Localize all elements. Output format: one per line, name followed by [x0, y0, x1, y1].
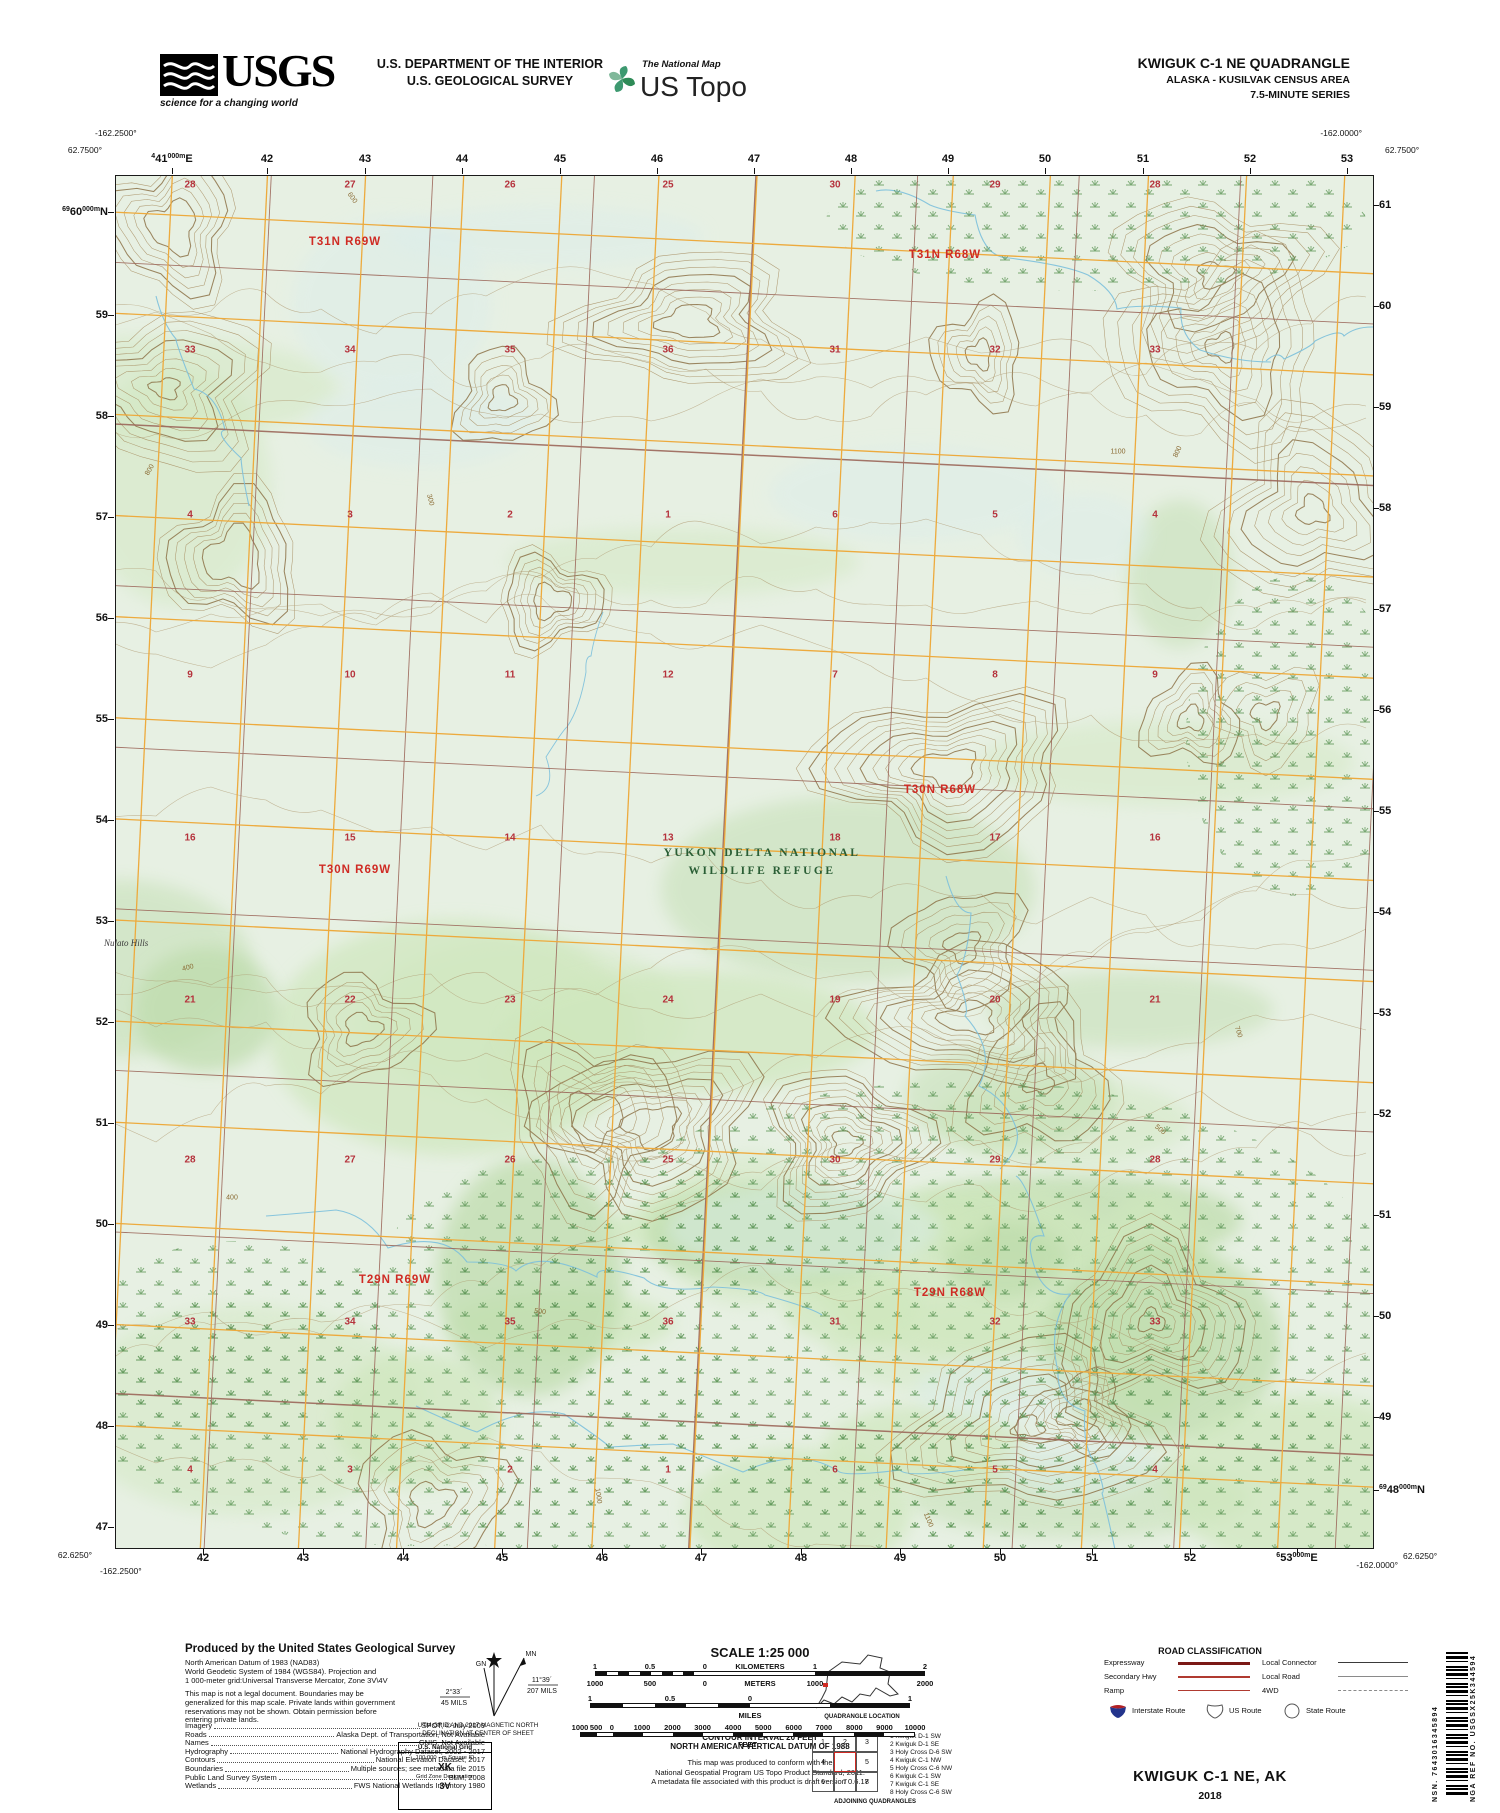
- adjoining-quad-cell: 6: [812, 1772, 834, 1792]
- road-class-label: Secondary Hwy: [1104, 1672, 1157, 1681]
- grid-tick: [108, 820, 114, 821]
- scale-bar-label: 500: [590, 1723, 603, 1732]
- grid-tick: [948, 168, 949, 174]
- grid-tick: [108, 1527, 114, 1528]
- corner-bl-lat: 62.6250°: [58, 1550, 92, 1560]
- grid-tick: [1373, 508, 1379, 509]
- scale-bar-cell: [613, 1733, 643, 1736]
- scale-bar-label: 1: [813, 1662, 817, 1671]
- corner-tr-lat: 62.7500°: [1385, 145, 1419, 155]
- usng-title: U.S. National Grid: [399, 1743, 491, 1753]
- grid-tick: [1347, 168, 1348, 174]
- svg-text:GN: GN: [476, 1661, 487, 1668]
- credit-leader: [217, 1756, 373, 1763]
- scale-bar-label: 2000: [664, 1723, 681, 1732]
- grid-easting-label: 51: [1137, 153, 1149, 165]
- svg-text:2°33´: 2°33´: [446, 1688, 463, 1696]
- grid-tick: [1297, 1549, 1298, 1555]
- grid-northing-label: 50: [1379, 1310, 1391, 1322]
- grid-tick: [365, 168, 366, 174]
- scale-bar-label: METERS: [744, 1679, 775, 1688]
- nga-ref: NGA REF NO. USGSX25K344594: [1470, 1652, 1477, 1802]
- grid-tick: [1000, 1549, 1001, 1555]
- grid-easting-label: 52: [1244, 153, 1256, 165]
- grid-tick: [900, 1549, 901, 1555]
- grid-tick: [1373, 912, 1379, 913]
- corner-tl-lon: -162.2500°: [95, 128, 137, 138]
- credit-label: Wetlands: [185, 1782, 216, 1791]
- grid-northing-label: 59: [1379, 401, 1391, 413]
- scale-bar-cell: [733, 1733, 763, 1736]
- grid-tick: [1373, 609, 1379, 610]
- road-class-line: [1178, 1662, 1250, 1665]
- scale-bar-label: 1000: [572, 1723, 589, 1732]
- grid-easting-label: 44: [456, 153, 468, 165]
- grid-tick: [754, 168, 755, 174]
- scale-bar-cell: [662, 1672, 673, 1675]
- scale-bar-unit: FEET: [738, 1740, 757, 1749]
- grid-northing-label: 51: [1379, 1209, 1391, 1221]
- grid-tick: [1373, 710, 1379, 711]
- grid-easting-label: 47: [748, 153, 760, 165]
- declination-diagram: GNMN2°33´45 MILS11°39´207 MILS: [432, 1642, 562, 1725]
- usng-square-id: XK: [399, 1761, 491, 1774]
- grid-northing-label: 50: [96, 1218, 108, 1230]
- grid-tick: [108, 517, 114, 518]
- grid-northing-label: 48: [96, 1420, 108, 1432]
- scale-bar-label: 0.5: [665, 1694, 675, 1703]
- road-class-label: Expressway: [1104, 1658, 1144, 1667]
- grid-northing-label: 57: [96, 511, 108, 523]
- adjoining-quad-cell: 4: [812, 1752, 834, 1772]
- interstate-shield-icon: [1108, 1702, 1128, 1724]
- scale-bar-label: 9000: [876, 1723, 893, 1732]
- scale-bar-label: 0: [703, 1679, 707, 1688]
- adjoining-quads-list: 1 Kwiguk D-1 SW2 Kwiguk D-1 SE3 Holy Cro…: [890, 1733, 952, 1797]
- grid-tick: [108, 1123, 114, 1124]
- grid-tick: [1373, 811, 1379, 812]
- road-shield-label: US Route: [1229, 1706, 1262, 1715]
- grid-northing-label: 55: [1379, 805, 1391, 817]
- grid-tick: [1045, 168, 1046, 174]
- barcode: [1446, 1652, 1468, 1797]
- grid-tick: [1092, 1549, 1093, 1555]
- grid-tick: [1143, 168, 1144, 174]
- topo-map: [115, 175, 1374, 1549]
- grid-tick: [1373, 205, 1379, 206]
- grid-easting-label: 46: [651, 153, 663, 165]
- tnm-label: The National Map: [642, 59, 721, 70]
- department-header: U.S. DEPARTMENT OF THE INTERIOR U.S. GEO…: [340, 56, 640, 90]
- scale-bar-cell: [793, 1733, 823, 1736]
- current-quad-cell: [834, 1752, 856, 1772]
- grid-tick: [108, 618, 114, 619]
- scale-bar-label: 2000: [917, 1679, 934, 1688]
- grid-northing-label: 6948000mN: [1379, 1484, 1425, 1496]
- scale-bar: [580, 1732, 915, 1737]
- grid-tick: [1373, 1013, 1379, 1014]
- road-class-line: [1338, 1662, 1408, 1663]
- scale-bar-label: 3000: [694, 1723, 711, 1732]
- grid-northing-label: 56: [96, 612, 108, 624]
- scale-bar-unit: MILES: [739, 1711, 762, 1720]
- us-topo-map-sheet: USGS science for a changing world U.S. D…: [0, 0, 1500, 1813]
- scale-bar-cell: [655, 1704, 687, 1707]
- grid-northing-label: 58: [96, 410, 108, 422]
- nsn-ref: NSN. 7643016345894: [1432, 1652, 1439, 1802]
- us-shield-icon: [1205, 1702, 1225, 1724]
- grid-northing-label: 49: [1379, 1411, 1391, 1423]
- grid-tick: [108, 315, 114, 316]
- sheet-title: KWIGUK C-1 NE, AK: [1080, 1768, 1340, 1785]
- grid-tick: [602, 1549, 603, 1555]
- scale-bar-label: 500: [644, 1679, 657, 1688]
- quad-location-marker: [823, 1683, 828, 1687]
- scale-bar-label: 1000: [587, 1679, 604, 1688]
- grid-tick: [801, 1549, 802, 1555]
- scale-bar-cell: [596, 1672, 607, 1675]
- scale-bar-label: 8000: [846, 1723, 863, 1732]
- grid-northing-label: 51: [96, 1117, 108, 1129]
- grid-tick: [1373, 1417, 1379, 1418]
- usgs-logo-icon: [160, 54, 218, 96]
- grid-tick: [108, 1022, 114, 1023]
- adjoining-quad-name: 3 Holy Cross D-6 SW: [890, 1749, 952, 1757]
- road-class-label: 4WD: [1262, 1686, 1279, 1695]
- grid-northing-label: 54: [1379, 906, 1391, 918]
- scale-bar-cell: [683, 1672, 694, 1675]
- grid-tick: [1373, 1114, 1379, 1115]
- datum-notes: North American Datum of 1983 (NAD83)Worl…: [185, 1659, 388, 1685]
- grid-tick: [657, 168, 658, 174]
- grid-tick: [108, 416, 114, 417]
- svg-text:11°39´: 11°39´: [532, 1676, 552, 1684]
- scale-bar-label: 6000: [785, 1723, 802, 1732]
- quadrangle-title-block: KWIGUK C-1 NE QUADRANGLE ALASKA - KUSILV…: [950, 55, 1350, 101]
- corner-tl-lat: 62.7500°: [68, 145, 102, 155]
- scale-bar-label: 0: [703, 1662, 707, 1671]
- corner-br-lon: -162.0000°: [1356, 1560, 1398, 1570]
- usgs-tagline: science for a changing world: [160, 98, 298, 109]
- adjoining-quad-name: 6 Kwiguk C-1 SW: [890, 1773, 952, 1781]
- road-class-line: [1338, 1690, 1408, 1691]
- grid-tick: [1373, 1316, 1379, 1317]
- scale-bar-label: 1: [588, 1694, 592, 1703]
- adjoining-quad-name: 8 Holy Cross C-6 SW: [890, 1789, 952, 1797]
- corner-tr-lon: -162.0000°: [1320, 128, 1362, 138]
- adjoining-quad-cell: 5: [856, 1752, 878, 1772]
- scale-bar-cell: [673, 1733, 703, 1736]
- scale-bar-label: 7000: [816, 1723, 833, 1732]
- road-class-label: Local Road: [1262, 1672, 1300, 1681]
- grid-northing-label: 52: [96, 1016, 108, 1028]
- scale-bar-cell: [640, 1672, 651, 1675]
- grid-easting-label: 53: [1341, 153, 1353, 165]
- scale-bar-label: 0: [610, 1723, 614, 1732]
- scale-bar-label: 0: [748, 1694, 752, 1703]
- grid-tick: [1373, 1215, 1379, 1216]
- credit-leader: [230, 1748, 338, 1755]
- usng-sub: 100,000 - m Square ID: [399, 1753, 491, 1761]
- grid-tick: [1190, 1549, 1191, 1555]
- sheet-year: 2018: [1080, 1790, 1340, 1802]
- grid-easting-label: 49: [942, 153, 954, 165]
- scale-bar-cell: [581, 1733, 597, 1736]
- grid-northing-label: 52: [1379, 1108, 1391, 1120]
- credit-leader: [209, 1731, 335, 1738]
- grid-northing-label: 61: [1379, 199, 1391, 211]
- grid-northing-label: 53: [96, 915, 108, 927]
- scale-bar-label: 10000: [905, 1723, 926, 1732]
- quadrangle-location-caption: QUADRANGLE LOCATION: [802, 1714, 922, 1720]
- grid-northing-label: 6960000mN: [62, 206, 108, 218]
- road-class-line: [1338, 1676, 1408, 1677]
- grid-tick: [108, 212, 114, 213]
- grid-northing-label: 49: [96, 1319, 108, 1331]
- grid-northing-label: 59: [96, 309, 108, 321]
- grid-northing-label: 55: [96, 713, 108, 725]
- grid-tick: [108, 1426, 114, 1427]
- grid-northing-label: 53: [1379, 1007, 1391, 1019]
- grid-northing-label: 58: [1379, 502, 1391, 514]
- scale-bar: [595, 1671, 925, 1676]
- grid-tick: [1373, 407, 1379, 408]
- grid-easting-label: 441000mE: [151, 153, 192, 165]
- usng-zone: 3V: [399, 1780, 491, 1792]
- scale-bar-cell: [618, 1672, 629, 1675]
- grid-northing-label: 60: [1379, 300, 1391, 312]
- adjoining-quads-grid: 12345678: [812, 1732, 878, 1792]
- scale-bar-label: 1000: [634, 1723, 651, 1732]
- grid-easting-label: 50: [1039, 153, 1051, 165]
- produced-by-title: Produced by the United States Geological…: [185, 1643, 455, 1655]
- state-shield-icon: [1282, 1702, 1302, 1724]
- svg-text:MN: MN: [526, 1651, 537, 1658]
- adjoining-quads-caption: ADJOINING QUADRANGLES: [800, 1799, 950, 1805]
- adjoining-quad-cell: 7: [834, 1772, 856, 1792]
- grid-easting-label: 45: [554, 153, 566, 165]
- ustopo-label: US Topo: [640, 71, 747, 103]
- road-class-line: [1178, 1676, 1250, 1678]
- scale-bar-label: 1000: [807, 1679, 824, 1688]
- grid-tick: [203, 1549, 204, 1555]
- road-classification-title: ROAD CLASSIFICATION: [1100, 1646, 1320, 1656]
- grid-easting-label: 43: [359, 153, 371, 165]
- grid-tick: [1373, 1490, 1379, 1491]
- adjoining-quad-cell: 8: [856, 1772, 878, 1792]
- credit-leader: [225, 1765, 349, 1772]
- scale-bar: [590, 1703, 910, 1708]
- us-national-grid-box: U.S. National Grid 100,000 - m Square ID…: [398, 1742, 492, 1810]
- svg-text:207 MILS: 207 MILS: [527, 1688, 557, 1695]
- grid-tick: [303, 1549, 304, 1555]
- grid-tick: [403, 1549, 404, 1555]
- svg-text:45 MILS: 45 MILS: [441, 1700, 467, 1707]
- scale-bar-cell: [815, 1672, 924, 1675]
- grid-tick: [560, 168, 561, 174]
- scale-bar-cell: [830, 1704, 910, 1707]
- quad-series: 7.5-MINUTE SERIES: [950, 89, 1350, 101]
- scale-bar-label: 4000: [725, 1723, 742, 1732]
- national-map-pinwheel-icon: [606, 63, 638, 95]
- quad-title: KWIGUK C-1 NE QUADRANGLE: [950, 55, 1350, 71]
- usgs-wordmark: USGS: [222, 44, 334, 97]
- adjoining-quad-name: 7 Kwiguk C-1 SE: [890, 1781, 952, 1789]
- grid-tick: [108, 921, 114, 922]
- corner-bl-lon: -162.2500°: [100, 1566, 142, 1576]
- grid-tick: [108, 1224, 114, 1225]
- dept-line1: U.S. DEPARTMENT OF THE INTERIOR: [340, 56, 640, 73]
- grid-tick: [462, 168, 463, 174]
- scale-bar-cell: [854, 1733, 884, 1736]
- grid-tick: [108, 1325, 114, 1326]
- legal-notes: This map is not a legal document. Bounda…: [185, 1690, 395, 1725]
- scale-bar-label: 1: [908, 1694, 912, 1703]
- scale-bar-label: 2: [923, 1662, 927, 1671]
- grid-tick: [701, 1549, 702, 1555]
- grid-tick: [108, 719, 114, 720]
- grid-northing-label: 54: [96, 814, 108, 826]
- quad-area: ALASKA - KUSILVAK CENSUS AREA: [950, 74, 1350, 86]
- scale-bar-cell: [718, 1704, 750, 1707]
- adjoining-quad-name: 4 Kwiguk C-1 NW: [890, 1757, 952, 1765]
- grid-easting-label: 42: [261, 153, 273, 165]
- credit-leader: [218, 1782, 352, 1789]
- road-class-line: [1178, 1690, 1250, 1691]
- road-shield-label: Interstate Route: [1132, 1706, 1185, 1715]
- grid-tick: [502, 1549, 503, 1555]
- grid-tick: [172, 168, 173, 174]
- road-class-label: Ramp: [1104, 1686, 1124, 1695]
- adjoining-quad-name: 2 Kwiguk D-1 SE: [890, 1741, 952, 1749]
- grid-tick: [1373, 306, 1379, 307]
- grid-northing-label: 47: [96, 1521, 108, 1533]
- scale-bar-label: 0.5: [645, 1662, 655, 1671]
- declination-caption: UTM GRID AND 2017 MAGNETIC NORTH DECLINA…: [388, 1722, 568, 1737]
- scale-bar-cell: [591, 1704, 623, 1707]
- grid-tick: [1250, 168, 1251, 174]
- grid-easting-label: 48: [845, 153, 857, 165]
- road-shield-label: State Route: [1306, 1706, 1346, 1715]
- scale-bar-label: 5000: [755, 1723, 772, 1732]
- credit-leader: [211, 1739, 417, 1746]
- adjoining-quad-name: 5 Holy Cross C-6 NW: [890, 1765, 952, 1773]
- dept-line2: U.S. GEOLOGICAL SURVEY: [340, 73, 640, 90]
- grid-tick: [851, 168, 852, 174]
- road-class-label: Local Connector: [1262, 1658, 1317, 1667]
- scale-bar-label: 1: [593, 1662, 597, 1671]
- grid-tick: [267, 168, 268, 174]
- grid-northing-label: 57: [1379, 603, 1391, 615]
- corner-br-lat: 62.6250°: [1403, 1551, 1437, 1561]
- scale-bar-label: KILOMETERS: [735, 1662, 784, 1671]
- grid-northing-label: 56: [1379, 704, 1391, 716]
